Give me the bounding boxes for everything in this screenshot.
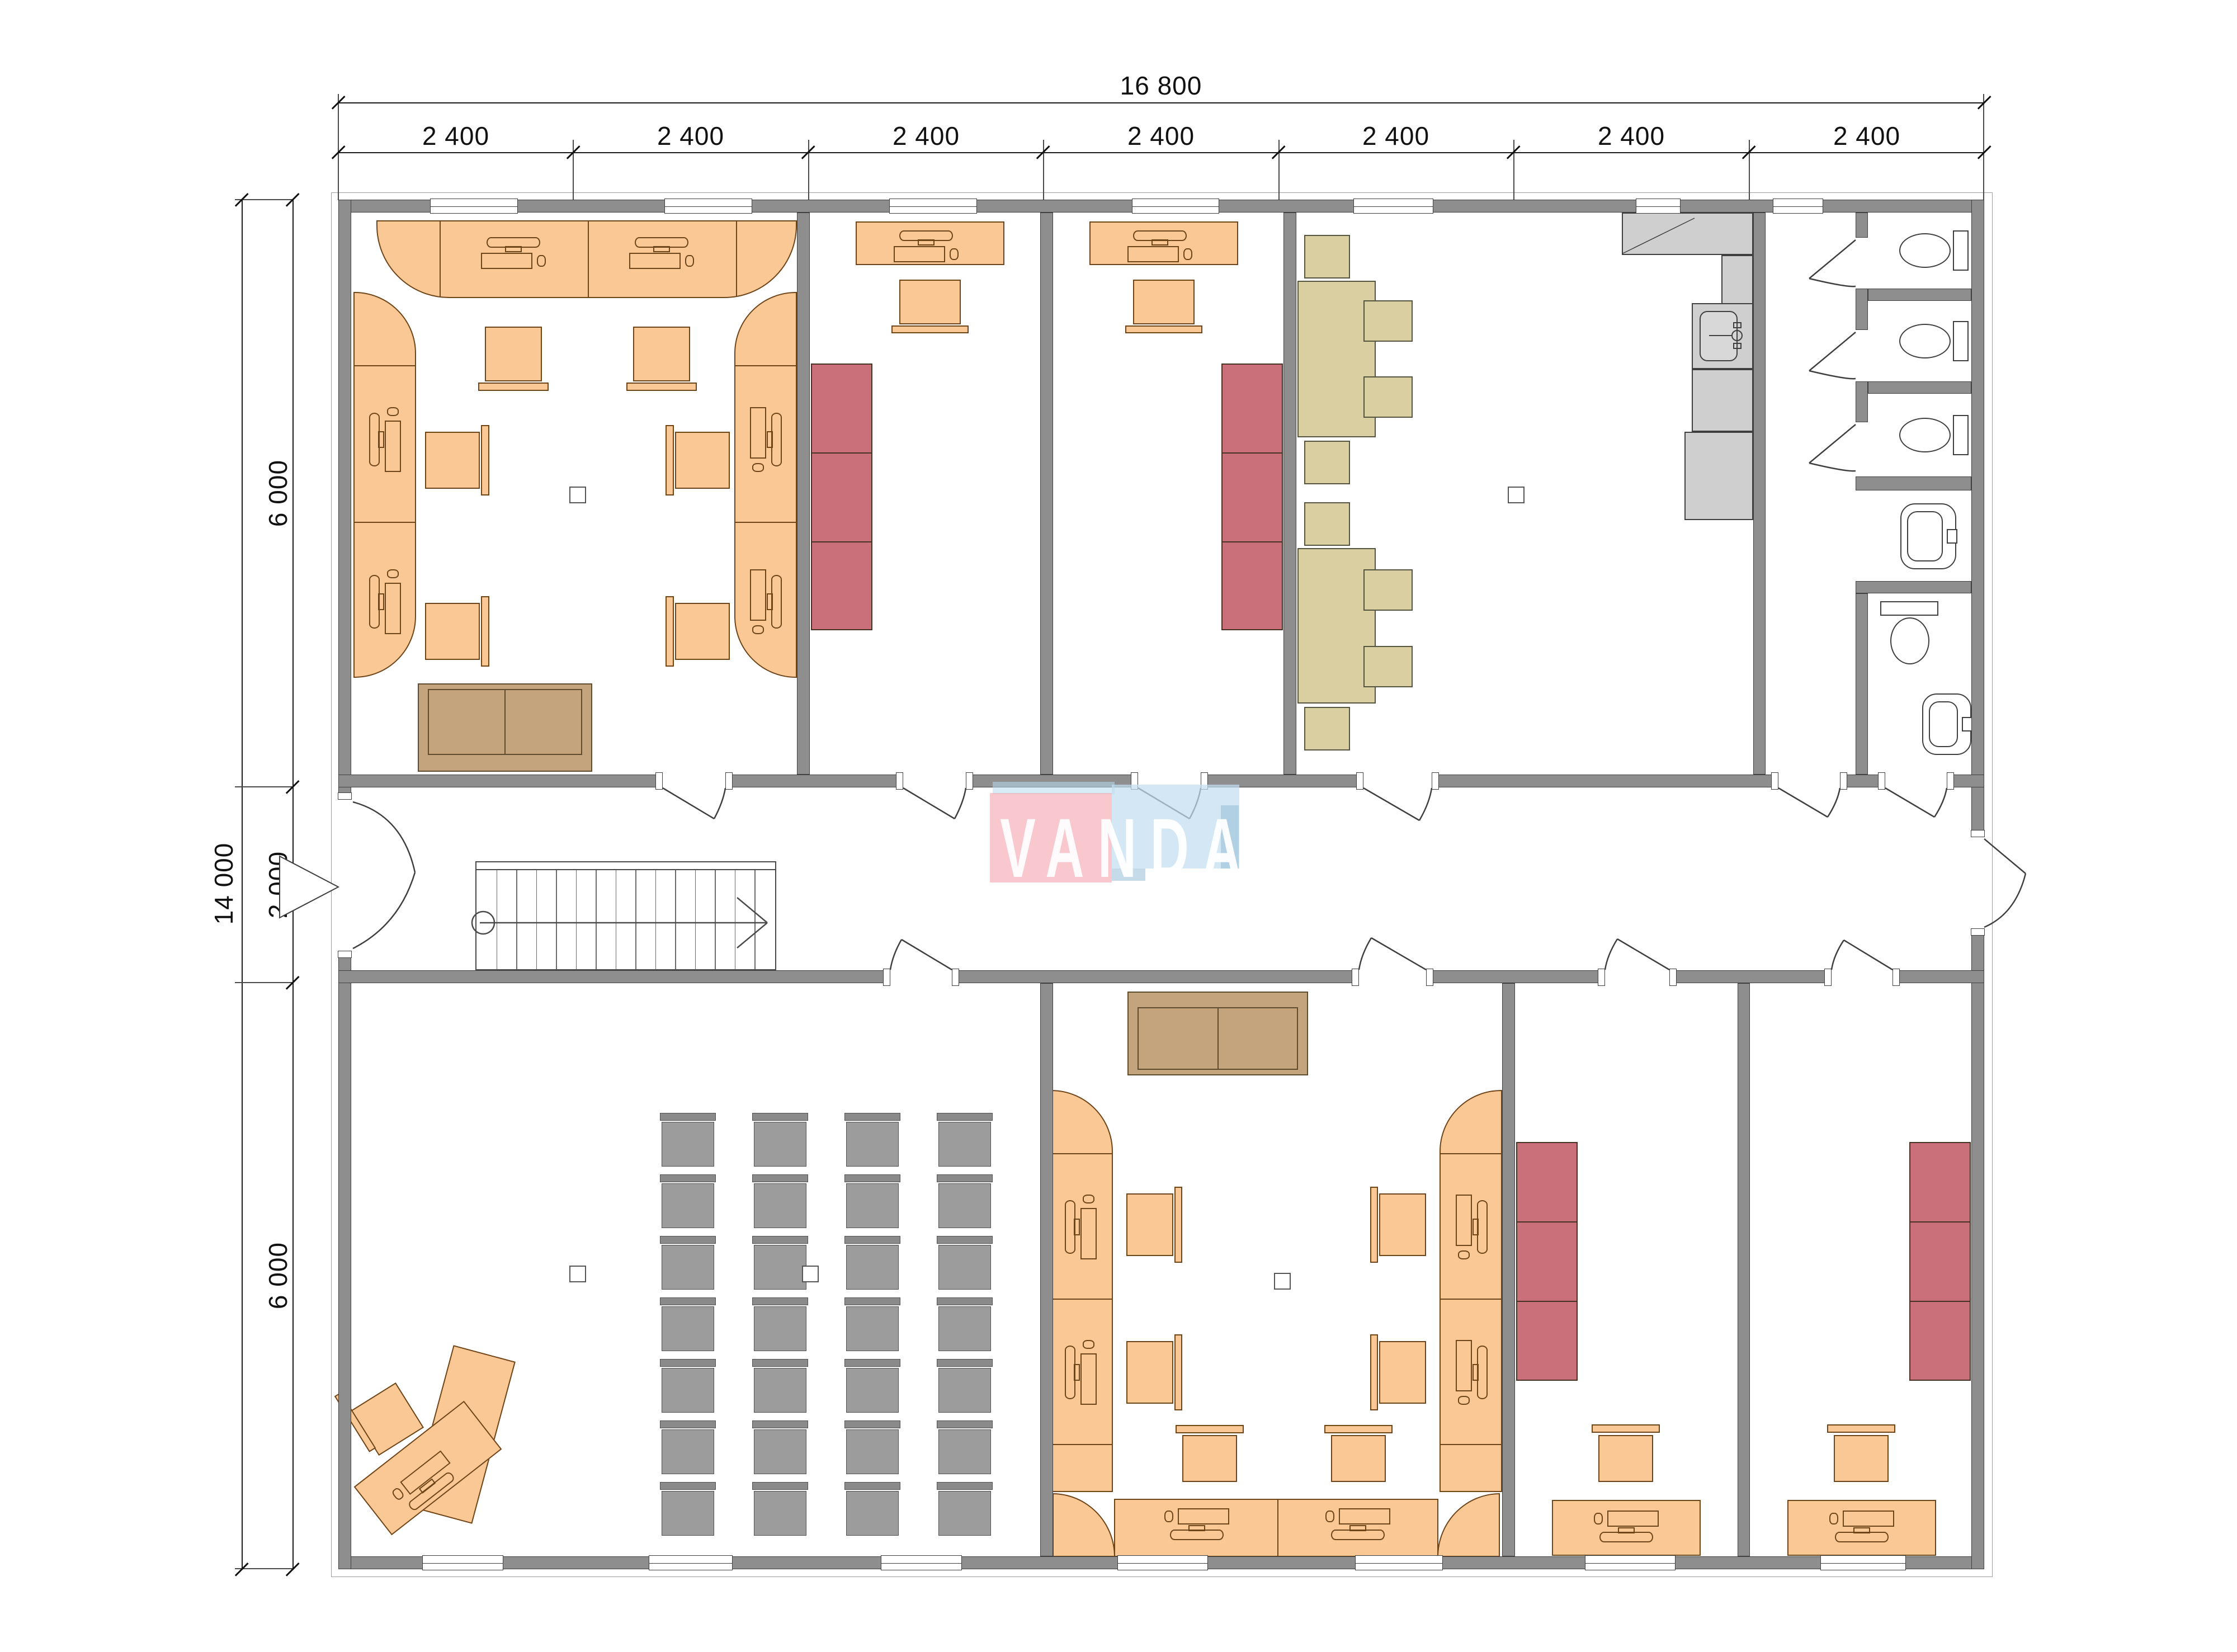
- wall-stall-divider: [1856, 476, 1971, 490]
- classroom-chair-back: [844, 1482, 900, 1490]
- classroom-chair-back: [844, 1113, 900, 1121]
- watermark-text: VANDA: [1000, 800, 1255, 896]
- wall-bath-partition: [1856, 581, 1971, 593]
- door-jamb: [338, 792, 352, 800]
- classroom-chair-back: [752, 1174, 808, 1182]
- door-jamb: [1824, 969, 1832, 986]
- cabinet-divider: [1910, 1301, 1970, 1302]
- office-chair-back: [1370, 1334, 1378, 1410]
- office-chair: [1379, 1193, 1426, 1256]
- classroom-chair-back: [752, 1236, 808, 1244]
- toilet-tank: [1953, 415, 1969, 455]
- workstation: [355, 406, 415, 473]
- dim-ext: [573, 140, 574, 200]
- mouse-icon: [1829, 1513, 1838, 1525]
- classroom-chair: [938, 1183, 991, 1228]
- mouse-icon: [1325, 1511, 1334, 1523]
- door-jamb: [1878, 772, 1885, 790]
- kitchen-counter: [1692, 369, 1753, 432]
- classroom-chair-back: [844, 1174, 900, 1182]
- desk-run-left: [1050, 1090, 1113, 1492]
- table-chair: [1363, 300, 1413, 342]
- stair-riser: [754, 870, 756, 969]
- door-opening: [903, 773, 966, 789]
- door-jamb: [1971, 928, 1985, 936]
- dim-label-top-total: 16 800: [1077, 70, 1245, 101]
- keyboard-icon: [1080, 1353, 1097, 1405]
- monitor-icon: [1835, 1532, 1889, 1543]
- keyboard-icon: [385, 421, 401, 472]
- keyboard-icon: [1456, 1195, 1473, 1246]
- monitor-icon: [1133, 230, 1187, 241]
- desk-divider: [1441, 1444, 1501, 1445]
- table-chair: [1363, 376, 1413, 418]
- wall-stall-divider: [1868, 381, 1971, 394]
- dim-ext: [235, 982, 294, 983]
- cabinet-divider: [812, 452, 871, 454]
- floor-plan: 16 800 2 400 2 400 2 400 2 400 2 400 2 4…: [0, 0, 2237, 1652]
- cabinet: [811, 364, 872, 630]
- wall-interior: [1753, 213, 1766, 775]
- kitchen-counter: [1622, 213, 1753, 255]
- classroom-chair-back: [844, 1359, 900, 1367]
- stair-riser: [715, 870, 716, 969]
- stair-riser: [635, 870, 636, 969]
- window: [422, 1555, 503, 1570]
- monitor-icon: [1478, 1346, 1488, 1399]
- keyboard-icon: [1456, 1340, 1473, 1391]
- classroom-chair-back: [752, 1359, 808, 1367]
- monitor-icon: [1478, 1200, 1488, 1254]
- wall-corridor-bottom: [338, 970, 1984, 983]
- mouse-icon: [1083, 1195, 1094, 1203]
- mouse-icon: [753, 625, 764, 634]
- door-jamb: [1432, 772, 1439, 790]
- stair-riser: [497, 870, 498, 969]
- door-opening-exit: [1970, 837, 1985, 928]
- cabinet-divider: [1223, 541, 1282, 542]
- dim-line-top-total: [338, 102, 1984, 103]
- toilet-bowl: [1899, 233, 1951, 268]
- keyboard-icon: [629, 253, 681, 269]
- window: [1636, 199, 1681, 214]
- classroom-chair: [938, 1429, 991, 1474]
- dim-label-segment: 2 400: [1346, 121, 1446, 151]
- desk-run-right: [1440, 1090, 1502, 1492]
- office-chair: [1598, 1435, 1653, 1482]
- classroom-chair: [754, 1183, 806, 1228]
- office-chair: [675, 432, 730, 489]
- dim-line-left-segments: [292, 200, 294, 1569]
- mouse-icon: [1459, 1396, 1470, 1405]
- cabinet-divider: [1223, 452, 1282, 454]
- door-jamb: [1669, 969, 1677, 986]
- door-opening: [1359, 969, 1426, 984]
- mouse-icon: [387, 569, 399, 578]
- window: [430, 199, 518, 214]
- dim-label-segment: 2 400: [1111, 121, 1211, 151]
- structural-column: [1508, 487, 1525, 503]
- desk-divider: [355, 365, 415, 366]
- classroom-chair: [754, 1491, 806, 1536]
- watermark-box-edge: [993, 782, 1115, 794]
- desk-divider: [440, 221, 441, 297]
- sofa: [418, 683, 592, 772]
- desk-divider: [1051, 1299, 1112, 1300]
- desk-divider: [1051, 1444, 1112, 1445]
- monitor-icon: [1065, 1346, 1075, 1399]
- office-chair: [1126, 1193, 1173, 1256]
- keyboard-icon: [1843, 1511, 1894, 1527]
- office-chair: [425, 432, 480, 489]
- desk-divider: [736, 221, 737, 297]
- mouse-icon: [1164, 1511, 1173, 1523]
- classroom-chair: [938, 1122, 991, 1167]
- mouse-icon: [1459, 1250, 1470, 1259]
- keyboard-icon: [894, 246, 945, 262]
- sofa-divider: [504, 689, 506, 755]
- classroom-chair: [846, 1183, 899, 1228]
- staircase: [475, 861, 776, 970]
- office-chair-back: [1827, 1424, 1895, 1433]
- cabinet-divider: [1910, 1221, 1970, 1223]
- keyboard-icon: [481, 253, 532, 269]
- classroom-chair-back: [752, 1482, 808, 1490]
- wall-stall-front: [1856, 381, 1868, 422]
- cabinet: [1221, 364, 1283, 630]
- monitor-icon: [1331, 1530, 1385, 1541]
- window: [664, 199, 752, 214]
- door-jamb: [1893, 969, 1900, 986]
- dim-ext: [338, 94, 339, 200]
- wall-interior: [1283, 213, 1296, 775]
- window: [881, 1555, 962, 1570]
- wall-interior: [1040, 983, 1053, 1556]
- door-jamb: [1947, 772, 1954, 790]
- kitchen-sink-unit: [1692, 303, 1753, 369]
- window: [1585, 1555, 1676, 1570]
- monitor-icon: [899, 230, 953, 241]
- window: [1355, 1555, 1443, 1570]
- stair-riser: [576, 870, 577, 969]
- workstation: [893, 216, 960, 276]
- classroom-chair-back: [660, 1420, 716, 1428]
- classroom-chair: [662, 1306, 714, 1351]
- door-jamb: [1356, 772, 1363, 790]
- door-jamb: [966, 772, 973, 790]
- kitchen-counter: [1684, 432, 1753, 520]
- office-chair: [899, 280, 961, 324]
- dim-label-segment: 2 400: [1816, 121, 1917, 151]
- keyboard-icon: [1339, 1509, 1390, 1525]
- mouse-icon: [950, 248, 959, 260]
- keyboard-icon: [1080, 1208, 1097, 1259]
- wall-stall-divider: [1868, 289, 1971, 301]
- door-jamb: [725, 772, 733, 790]
- toilet-bowl: [1890, 617, 1929, 664]
- workstation: [628, 223, 695, 283]
- cabinet-divider: [1517, 1301, 1577, 1302]
- classroom-chair: [754, 1122, 806, 1167]
- toilet-tank: [1953, 230, 1969, 271]
- classroom-chair-back: [937, 1297, 993, 1305]
- mouse-icon: [1594, 1513, 1603, 1525]
- mouse-icon: [685, 255, 694, 267]
- classroom-chair-back: [844, 1236, 900, 1244]
- classroom-chair-back: [752, 1420, 808, 1428]
- door-jamb: [896, 772, 903, 790]
- door-opening: [1778, 773, 1840, 789]
- workstation: [736, 568, 796, 635]
- wall-interior: [797, 213, 810, 775]
- dim-line-top-segments: [338, 152, 1984, 153]
- keyboard-icon: [1607, 1511, 1659, 1527]
- dim-ext: [1513, 140, 1514, 200]
- keyboard-icon: [751, 569, 767, 621]
- office-chair-back: [666, 596, 674, 667]
- classroom-chair: [754, 1306, 806, 1351]
- door-jamb: [1598, 969, 1605, 986]
- office-chair-back: [1324, 1425, 1393, 1433]
- monitor-icon: [369, 413, 380, 466]
- classroom-chair: [846, 1245, 899, 1290]
- window: [1820, 1555, 1906, 1570]
- door-jamb: [1971, 830, 1985, 837]
- stair-riser: [516, 870, 517, 969]
- wall-stall-front: [1856, 289, 1868, 330]
- classroom-chair-back: [844, 1297, 900, 1305]
- door-jamb: [1426, 969, 1433, 986]
- door-opening: [1363, 773, 1432, 789]
- classroom-chair-back: [937, 1113, 993, 1121]
- dim-ext: [1983, 94, 1984, 200]
- structural-column: [1274, 1273, 1291, 1290]
- mouse-icon: [753, 463, 764, 472]
- office-chair: [485, 327, 542, 381]
- office-chair: [1126, 1341, 1173, 1404]
- office-chair-back: [626, 383, 697, 391]
- stair-riser: [596, 870, 597, 969]
- stair-riser: [675, 870, 676, 969]
- monitor-icon: [1170, 1530, 1224, 1541]
- toilet-bowl: [1899, 324, 1951, 358]
- office-chair-back: [1174, 1187, 1182, 1263]
- dim-label-segment: 2 400: [640, 121, 741, 151]
- door-jamb: [338, 951, 352, 958]
- dim-line-left-total: [242, 200, 243, 1569]
- door-jamb: [952, 969, 959, 986]
- workstation: [1050, 1339, 1111, 1406]
- window: [649, 1555, 733, 1570]
- desk-divider: [588, 221, 589, 297]
- dim-label-segment: 2 400: [405, 121, 506, 151]
- structural-column: [569, 1266, 586, 1282]
- keyboard-icon: [385, 583, 401, 634]
- stair-riser: [616, 870, 617, 969]
- classroom-chair: [662, 1491, 714, 1536]
- desk-divider: [1277, 1500, 1278, 1556]
- door-opening: [1885, 773, 1947, 789]
- table-chair: [1304, 441, 1350, 484]
- classroom-chair-back: [660, 1482, 716, 1490]
- wall-bath-partition: [1856, 593, 1868, 775]
- classroom-chair: [846, 1429, 899, 1474]
- office-chair-back: [666, 425, 674, 495]
- classroom-chair-back: [937, 1174, 993, 1182]
- door-jamb: [1771, 772, 1778, 790]
- toilet-bowl: [1899, 418, 1951, 452]
- desk-divider: [1051, 1153, 1112, 1154]
- dim-ext: [1278, 140, 1280, 200]
- sofa-divider: [1217, 1007, 1219, 1070]
- desk-divider: [1441, 1299, 1501, 1300]
- stair-riser: [735, 870, 736, 969]
- door-jamb: [1352, 969, 1359, 986]
- sofa: [1127, 992, 1308, 1075]
- desk-divider: [1441, 1153, 1501, 1154]
- structural-column: [802, 1266, 819, 1282]
- classroom-chair: [662, 1368, 714, 1413]
- classroom-chair: [938, 1368, 991, 1413]
- workstation: [1442, 1193, 1502, 1261]
- window: [1117, 1555, 1208, 1570]
- washbasin: [1922, 693, 1971, 755]
- office-chair-back: [481, 425, 489, 495]
- classroom-chair-back: [937, 1359, 993, 1367]
- classroom-chair: [846, 1491, 899, 1536]
- classroom-chair: [662, 1245, 714, 1290]
- classroom-chair-back: [752, 1113, 808, 1121]
- washbasin-bowl: [1907, 511, 1943, 561]
- keyboard-icon: [751, 407, 767, 459]
- door-opening: [1832, 969, 1893, 984]
- office-chair-back: [478, 383, 549, 391]
- mouse-icon: [537, 255, 546, 267]
- stair-riser: [655, 870, 657, 969]
- keyboard-icon: [1127, 246, 1179, 262]
- dim-ext: [808, 140, 809, 200]
- classroom-chair: [938, 1306, 991, 1351]
- dim-label-segment: 2 400: [1581, 121, 1682, 151]
- window: [1353, 199, 1433, 214]
- window: [889, 199, 977, 214]
- office-chair: [633, 327, 690, 381]
- toilet-tank: [1880, 601, 1938, 616]
- monitor-icon: [635, 237, 688, 248]
- cabinet-divider: [1517, 1221, 1577, 1223]
- door-jamb: [1840, 772, 1847, 790]
- dim-ext: [235, 199, 294, 200]
- dim-label-left-total: 14 000: [210, 828, 238, 940]
- office-chair: [1133, 280, 1195, 324]
- workstation: [1163, 1494, 1230, 1555]
- classroom-chair-back: [660, 1113, 716, 1121]
- washbasin: [1900, 503, 1956, 569]
- office-chair: [1182, 1435, 1237, 1482]
- classroom-chair: [754, 1429, 806, 1474]
- classroom-chair-back: [937, 1482, 993, 1490]
- faucet-icon: [1947, 529, 1957, 544]
- office-chair-back: [1370, 1187, 1378, 1263]
- monitor-icon: [1065, 1200, 1075, 1254]
- classroom-chair: [754, 1245, 806, 1290]
- wall-interior: [1040, 213, 1053, 775]
- office-chair-back: [1174, 1334, 1182, 1410]
- office-chair-back: [1176, 1425, 1244, 1433]
- classroom-chair: [662, 1183, 714, 1228]
- classroom-chair: [938, 1245, 991, 1290]
- washbasin-bowl: [1929, 701, 1958, 747]
- classroom-chair: [938, 1491, 991, 1536]
- office-chair-back: [891, 325, 969, 333]
- window: [1773, 199, 1823, 214]
- classroom-chair-back: [752, 1297, 808, 1305]
- stair-riser: [536, 870, 537, 969]
- monitor-icon: [772, 575, 782, 629]
- desk-divider: [735, 365, 796, 366]
- office-chair-back: [1125, 325, 1202, 333]
- stair-landing-edge: [476, 869, 775, 870]
- monitor-icon: [772, 413, 782, 466]
- office-chair: [1331, 1435, 1386, 1482]
- office-chair-back: [481, 596, 489, 667]
- office-chair: [425, 603, 480, 660]
- table-chair: [1304, 235, 1350, 279]
- classroom-chair-back: [660, 1174, 716, 1182]
- workstation: [355, 568, 415, 635]
- toilet-tank: [1953, 321, 1969, 361]
- office-chair: [1379, 1341, 1426, 1404]
- dim-label-left-segment: 6 000: [264, 437, 292, 549]
- classroom-chair-back: [660, 1297, 716, 1305]
- workstation: [1828, 1497, 1895, 1557]
- workstation: [1593, 1497, 1660, 1557]
- wall-interior: [1738, 983, 1750, 1556]
- office-chair-back: [1592, 1424, 1660, 1433]
- classroom-chair: [846, 1306, 899, 1351]
- mouse-icon: [387, 407, 399, 416]
- kitchen-sink-basin: [1700, 311, 1738, 361]
- door-jamb: [883, 969, 890, 986]
- classroom-chair: [846, 1122, 899, 1167]
- monitor-icon: [487, 237, 540, 248]
- door-opening: [1605, 969, 1669, 984]
- door-opening: [663, 773, 725, 789]
- wall-interior: [1502, 983, 1515, 1556]
- cabinet: [1516, 1142, 1578, 1381]
- cabinet-divider: [812, 541, 871, 542]
- workstation: [1442, 1339, 1502, 1406]
- office-chair: [1834, 1435, 1889, 1482]
- classroom-chair-back: [660, 1359, 716, 1367]
- dim-ext: [1043, 140, 1044, 200]
- office-chair: [675, 603, 730, 660]
- keyboard-icon: [1178, 1509, 1229, 1525]
- door-opening: [890, 969, 952, 984]
- table-chair: [1363, 646, 1413, 687]
- classroom-chair: [662, 1122, 714, 1167]
- mouse-icon: [1083, 1340, 1094, 1349]
- dim-label-left-segment: 2 000: [264, 829, 292, 941]
- window: [1132, 199, 1219, 214]
- dim-label-segment: 2 400: [876, 121, 976, 151]
- stair-riser: [695, 870, 696, 969]
- dim-label-left-segment: 6 000: [264, 1220, 292, 1332]
- door-opening-entrance: [337, 800, 352, 951]
- classroom-chair: [846, 1368, 899, 1413]
- classroom-chair: [662, 1429, 714, 1474]
- classroom-chair-back: [660, 1236, 716, 1244]
